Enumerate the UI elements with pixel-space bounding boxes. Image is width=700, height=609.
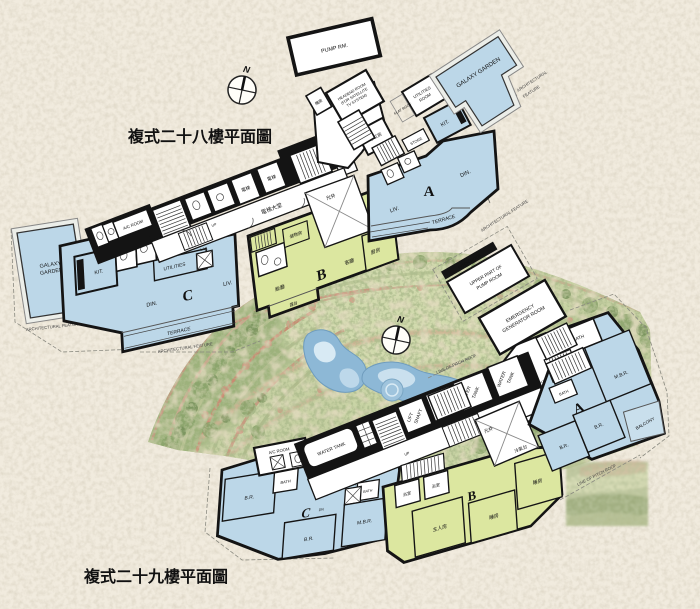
svg-text:C: C <box>182 287 193 305</box>
svg-text:A: A <box>424 184 435 200</box>
svg-text:複式二十八樓平面圖: 複式二十八樓平面圖 <box>127 127 272 146</box>
svg-text:複式二十九樓平面圖: 複式二十九樓平面圖 <box>83 567 228 586</box>
svg-text:B: B <box>316 266 327 285</box>
